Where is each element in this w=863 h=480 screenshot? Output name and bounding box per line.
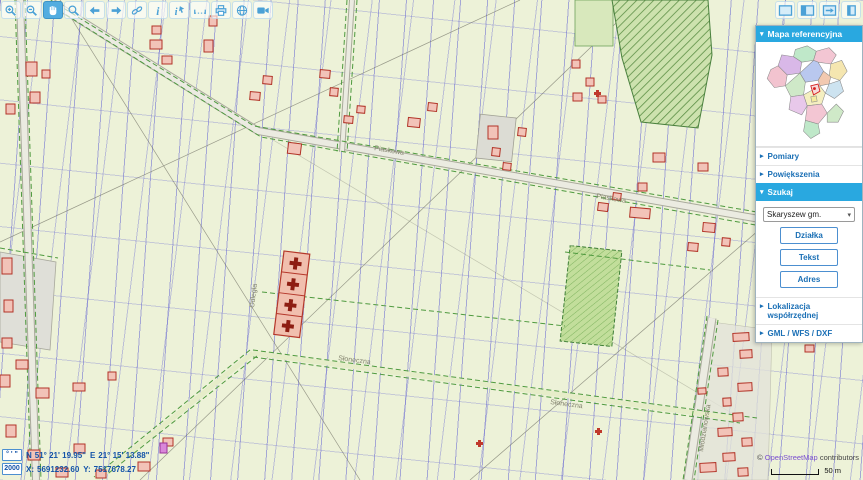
arrow-left-icon xyxy=(88,4,102,17)
vegetation-layer xyxy=(560,0,712,346)
pan-hand-icon xyxy=(46,4,60,17)
globe-button[interactable] xyxy=(232,1,252,19)
zoom-window-button[interactable] xyxy=(64,1,84,19)
dzialka-button[interactable]: Działka xyxy=(780,227,838,244)
dms-format-button[interactable]: ° ' " xyxy=(2,449,22,461)
scale-bar: 50 m xyxy=(771,466,841,475)
sidebar-section-reference-map[interactable]: ▾ Mapa referencyjna xyxy=(756,26,862,42)
layout-full-button[interactable] xyxy=(775,1,795,19)
voivodeship-overview-map xyxy=(759,44,859,144)
x-value: 5691232.60 xyxy=(37,465,79,474)
cross-marked-parcels xyxy=(274,251,310,338)
map-features: Piaskowa Piaskowa Słoneczna Słoneczna Od… xyxy=(0,0,863,480)
municipality-select-value: Skaryszew gm. xyxy=(767,210,821,219)
longitude-label: E xyxy=(90,451,95,460)
chevron-right-icon: ▸ xyxy=(760,170,764,178)
latitude-label: N xyxy=(26,451,32,460)
zoom-in-button[interactable] xyxy=(1,1,21,19)
section-label: Szukaj xyxy=(768,188,793,197)
zoom-out-icon xyxy=(25,4,39,17)
main-toolbar: i i xyxy=(1,1,273,19)
link-button[interactable] xyxy=(127,1,147,19)
x-label: X: xyxy=(26,465,34,474)
openstreetmap-link[interactable]: OpenStreetMap xyxy=(765,453,818,462)
zoom-window-icon xyxy=(67,4,81,17)
reference-map-title: Mapa referencyjna xyxy=(768,29,843,39)
next-view-button[interactable] xyxy=(106,1,126,19)
overview-map[interactable] xyxy=(756,42,862,147)
svg-text:i: i xyxy=(156,5,160,16)
latitude-value: 51° 21' 19.95" xyxy=(35,451,86,460)
section-label: GML / WFS / DXF xyxy=(768,329,833,338)
sidebar-section-powiekszenia[interactable]: ▸ Powiększenia xyxy=(756,165,862,183)
chevron-right-icon: ▸ xyxy=(760,152,764,160)
arrow-right-icon xyxy=(109,4,123,17)
chevron-right-icon: ▸ xyxy=(760,329,764,337)
link-icon xyxy=(130,4,144,17)
info-button[interactable]: i xyxy=(148,1,168,19)
street-label: Odległa xyxy=(249,283,259,308)
tekst-button[interactable]: Tekst xyxy=(780,249,838,266)
zoom-in-icon xyxy=(4,4,18,17)
layout-split-button[interactable] xyxy=(797,1,817,19)
coordinate-readout: ° ' " N 51° 21' 19.95" E 21° 15' 13.88" … xyxy=(2,447,149,475)
y-label: Y: xyxy=(83,465,90,474)
municipality-select[interactable]: Skaryszew gm. ▾ xyxy=(763,207,855,222)
section-label: Lokalizacja współrzędnej xyxy=(768,302,846,320)
sidebar-section-lokalizacja[interactable]: ▸ Lokalizacja współrzędnej xyxy=(756,297,862,324)
pan-button[interactable] xyxy=(43,1,63,19)
toggle-panel-icon xyxy=(822,4,837,17)
layout-full-icon xyxy=(778,4,793,17)
adres-button[interactable]: Adres xyxy=(780,271,838,288)
globe-icon xyxy=(235,4,249,17)
location-marker-icon xyxy=(813,87,816,90)
layout-toolbar xyxy=(775,1,861,19)
info-icon: i xyxy=(151,4,165,17)
measure-button[interactable] xyxy=(190,1,210,19)
ruler-icon xyxy=(193,4,207,17)
chevron-down-icon: ▾ xyxy=(760,30,764,38)
zoom-out-button[interactable] xyxy=(22,1,42,19)
snapshot-button[interactable] xyxy=(253,1,273,19)
sidebar-panel: ▾ Mapa referencyjna ▸ Pomiary ▸ P xyxy=(755,25,863,343)
longitude-value: 21° 15' 13.88" xyxy=(98,451,149,460)
panel-collapsed-icon xyxy=(844,4,859,17)
panel-collapsed-button[interactable] xyxy=(841,1,861,19)
dropdown-chevron-icon: ▾ xyxy=(847,211,851,219)
print-button[interactable] xyxy=(211,1,231,19)
section-label: Pomiary xyxy=(768,152,800,161)
map-attribution: © OpenStreetMap contributors xyxy=(757,453,859,462)
paved-parcels-layer xyxy=(0,114,772,480)
camera-icon xyxy=(256,4,270,17)
attribution-suffix: contributors xyxy=(820,453,859,462)
sidebar-section-pomiary[interactable]: ▸ Pomiary xyxy=(756,147,862,165)
identify-icon: i xyxy=(172,4,186,17)
chevron-down-icon: ▾ xyxy=(760,188,764,196)
chevron-right-icon: ▸ xyxy=(760,302,764,310)
map-canvas[interactable]: Piaskowa Piaskowa Słoneczna Słoneczna Od… xyxy=(0,0,863,480)
printer-icon xyxy=(214,4,228,17)
sidebar-section-gml-wfs-dxf[interactable]: ▸ GML / WFS / DXF xyxy=(756,324,862,342)
identify-button[interactable]: i xyxy=(169,1,189,19)
svg-text:i: i xyxy=(175,6,178,16)
scale-bar-line xyxy=(771,469,819,475)
scale-bar-label: 50 m xyxy=(824,466,841,475)
crs-2000-button[interactable]: 2000 xyxy=(2,463,22,475)
toggle-panel-button[interactable] xyxy=(819,1,839,19)
szukaj-content: Skaryszew gm. ▾ Działka Tekst Adres xyxy=(756,201,862,297)
sidebar-section-szukaj[interactable]: ▾ Szukaj xyxy=(756,183,862,201)
copyright-symbol: © xyxy=(757,453,763,462)
previous-view-button[interactable] xyxy=(85,1,105,19)
section-label: Powiększenia xyxy=(768,170,820,179)
y-value: 7517678.27 xyxy=(94,465,136,474)
layout-split-icon xyxy=(800,4,815,17)
